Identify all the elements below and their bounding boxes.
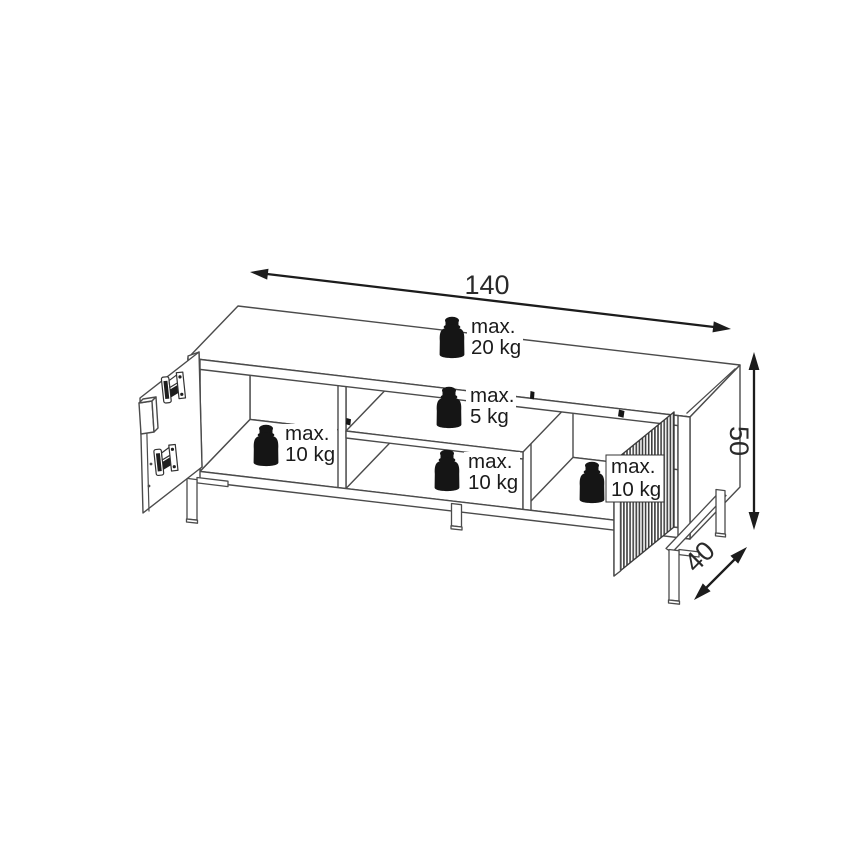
right-front-leg-foot [669,600,680,604]
center-leg-post [452,504,462,528]
right-stile [678,416,690,539]
diagram-canvas: max. 20 kg max. 5 kg max. 10 kg max. 10 … [0,0,868,868]
furniture-dimension-diagram: max. 20 kg max. 5 kg max. 10 kg max. 10 … [0,0,868,868]
door-fitting-dot [150,463,153,466]
left-leg-foot [187,519,198,523]
weight-icon [440,317,465,358]
right-back-leg-post [716,490,725,535]
door-fitting-dot [148,485,151,488]
arrowhead-right [713,321,732,332]
width-dimension-label: 140 [464,270,509,300]
load-label-line2: 10 kg [468,471,518,494]
load-label-line2: 10 kg [285,443,335,466]
depth-dimension: 40 [678,535,747,600]
arrowhead-left [250,269,269,280]
arrowhead-up [749,352,760,370]
door-handle [139,397,158,434]
load-label-line1: max. [468,450,512,473]
right-front-leg-post [669,550,679,602]
center-leg-foot [451,526,462,530]
divider-hinge-mark [530,391,535,400]
load-label-line2: 20 kg [471,336,521,359]
left-leg-post [187,478,197,520]
load-label-line1: max. [471,315,515,338]
load-label-line2: 10 kg [611,478,661,501]
top-hinge-mark [618,410,625,418]
load-label-middle-bottom: max. 10 kg [464,450,520,494]
load-label-line1: max. [611,455,655,478]
load-label-line2: 5 kg [470,405,509,428]
load-label-line1: max. [285,422,329,445]
depth-dimension-label: 40 [678,535,720,577]
arrowhead-down [749,512,760,530]
height-dimension-label: 50 [724,426,754,456]
right-back-leg-foot [716,533,726,537]
load-label-line1: max. [470,384,514,407]
load-label-shelf: max. 5 kg [466,384,516,428]
divider-left-front-edge [338,386,346,489]
load-label-right: max. 10 kg [606,455,664,502]
load-label-top: max. 20 kg [467,315,523,359]
load-label-left: max. 10 kg [281,422,337,466]
shelf-pin-mark [346,418,351,426]
